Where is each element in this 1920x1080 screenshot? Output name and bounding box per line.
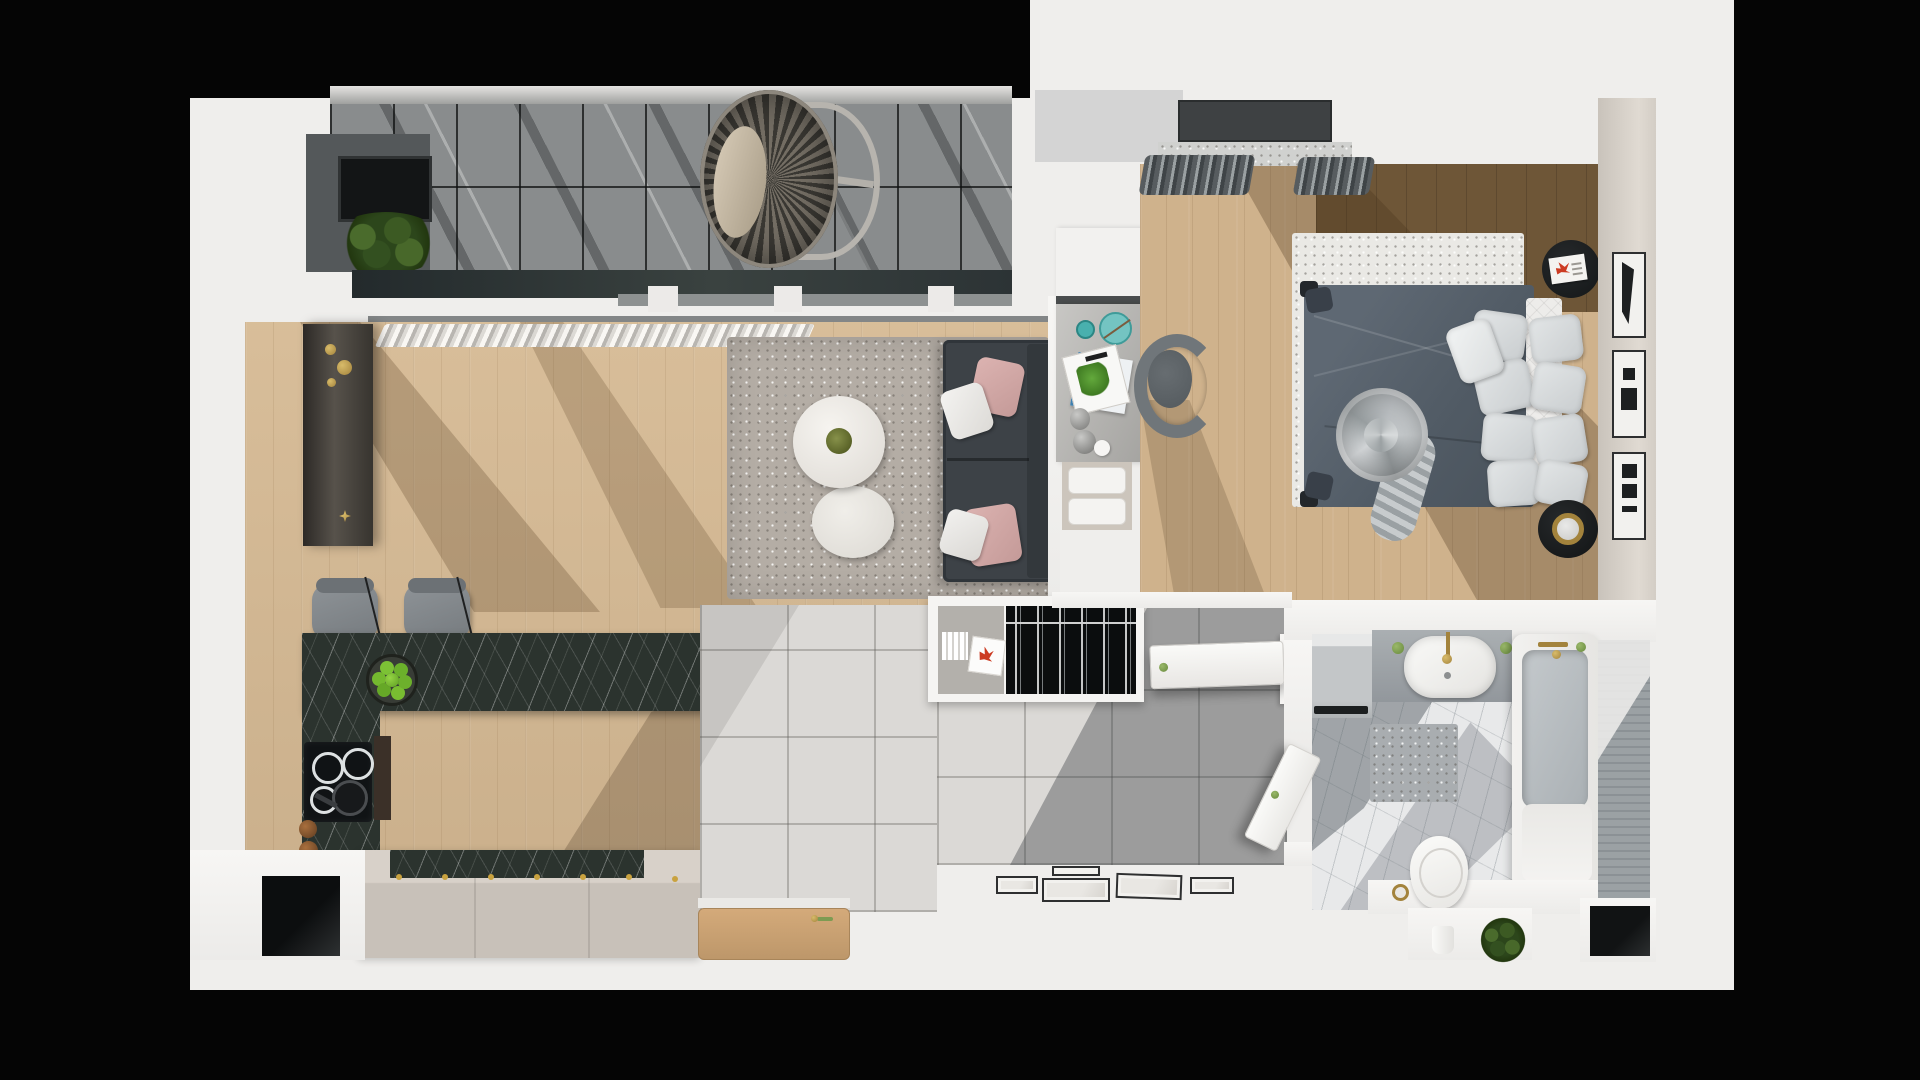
hanging-egg-chair [700, 90, 886, 272]
bedroom-curtain [1293, 157, 1376, 195]
tub-basin [1522, 650, 1588, 808]
apple-bowl [366, 654, 418, 706]
sink-faucet [1446, 632, 1450, 656]
bathroom-left-wall [1284, 640, 1312, 758]
burner [342, 748, 374, 780]
balcony [306, 80, 1016, 312]
red-artwork [978, 646, 994, 662]
bedroom-right-wall [1598, 98, 1656, 610]
island-door-seams [362, 878, 704, 958]
decor-gold-dish [325, 344, 336, 355]
sofa-seat-divider [947, 458, 1029, 461]
wall-art-panel [1612, 452, 1646, 540]
pillow [1527, 313, 1584, 365]
desk-drawer-unit [1062, 462, 1132, 530]
kitchen-island [362, 850, 704, 958]
bedroom-window [1178, 100, 1332, 142]
rolled-blanket [1336, 388, 1428, 482]
wall-picture-frame [1042, 878, 1110, 902]
rail-bracket [774, 286, 802, 312]
art-bar [1622, 506, 1637, 512]
tub-faucet [1538, 642, 1568, 647]
tub-deck [1522, 804, 1592, 882]
pillow [1486, 458, 1541, 508]
bar-stool [312, 584, 378, 640]
bathroom-shaft-niche [1590, 906, 1650, 956]
pillow [1531, 412, 1590, 468]
entrance-door [698, 908, 850, 960]
decor-gold-star [339, 510, 351, 522]
vanity-counter [1372, 630, 1512, 702]
island-marble-top [390, 850, 644, 878]
art-square [1623, 368, 1635, 380]
rail-bracket [648, 286, 678, 312]
washer-slot [1314, 706, 1368, 714]
entrance-threshold [698, 898, 850, 908]
wardrobe-cubby [938, 606, 1004, 694]
drawer [1068, 498, 1126, 525]
paint-brush [1103, 319, 1130, 339]
decor-gold-dish [337, 360, 352, 375]
small-picture-frame [968, 636, 1007, 676]
pillow [1480, 412, 1538, 465]
bedroom-curtain [1138, 155, 1255, 195]
shaft-niche [262, 876, 340, 956]
decor-gold-dish [327, 378, 336, 387]
nightstand-top [1542, 240, 1600, 298]
entrance-door-knob [811, 915, 818, 922]
washing-machine [1312, 634, 1372, 718]
sink-basin [1404, 636, 1496, 698]
soap-dish [1500, 642, 1512, 654]
bar-stool [404, 584, 470, 640]
papers [1548, 254, 1587, 285]
frame-art [1001, 881, 1033, 889]
wall-light-wedge [1598, 640, 1650, 760]
wall-picture-frame [996, 876, 1038, 894]
bathroom-left-wall-stub [1284, 842, 1312, 866]
desk-back-edge [1056, 296, 1142, 304]
teal-cup [1076, 320, 1095, 339]
tub-faucet-knob [1552, 650, 1561, 659]
green-apples [385, 673, 399, 687]
frame-art [1121, 878, 1177, 895]
office-chair [1134, 334, 1220, 438]
bathroom-plant [1476, 916, 1528, 964]
bathroom-right-wall [1598, 640, 1650, 906]
frame-art [1047, 883, 1105, 897]
coffee-table-small [812, 486, 894, 558]
clothes-hangers [1006, 606, 1136, 694]
copper-pot [299, 820, 317, 838]
wall-art-panel [1612, 252, 1646, 338]
desk-white-dish [1094, 440, 1110, 456]
books [942, 632, 968, 660]
hanger-rail [1006, 622, 1136, 624]
red-bird-print [1555, 261, 1571, 275]
sofa [943, 340, 1055, 582]
wall-picture-frame [1052, 866, 1100, 876]
door-handle [1159, 663, 1168, 672]
entrance-door-handle [817, 917, 833, 921]
frying-pan [332, 780, 368, 816]
induction-cooktop [304, 742, 372, 822]
desk-knob-object [1070, 408, 1090, 430]
magazine-cover-art [1075, 360, 1112, 398]
plan-canvas-top-right [1030, 0, 1734, 98]
wall-picture-frame [1190, 877, 1234, 894]
bathroom-vase [1432, 926, 1454, 954]
wall-picture-frame [1116, 873, 1183, 900]
door-handle [1270, 789, 1281, 800]
art-squares [1622, 464, 1637, 478]
hall-wardrobe [928, 596, 1144, 702]
dark-pillow [1304, 471, 1335, 502]
nightstand-bottom [1538, 500, 1598, 558]
desk-upper-cabinet [1056, 228, 1142, 302]
blanket-swirl-center [1364, 418, 1398, 452]
print-text-lines [1571, 262, 1581, 265]
soap-dish [1392, 642, 1404, 654]
sink-drain [1444, 672, 1451, 679]
bath-mat [1370, 724, 1458, 802]
oven-front [374, 736, 391, 820]
wall-bedroom-hall [1052, 592, 1292, 608]
drawer [1068, 467, 1126, 494]
tub-soap [1576, 642, 1586, 652]
burner [312, 752, 344, 784]
faucet-head [1442, 654, 1452, 664]
toilet-gold-dish [1392, 884, 1409, 901]
balcony-plant [328, 212, 444, 274]
bathtub [1512, 634, 1600, 890]
art-square [1621, 388, 1637, 410]
balcony-roof-rail [330, 86, 1012, 104]
rail-bracket [928, 286, 954, 312]
wardrobe-hanger-section [1006, 606, 1136, 694]
desk-knob-object [1073, 430, 1096, 454]
teal-plate [1099, 312, 1132, 345]
frame-art [1195, 882, 1229, 889]
chair-seat [1148, 350, 1192, 408]
hall-tiles [700, 605, 937, 912]
wall-art-panel [1612, 350, 1646, 438]
art-blade-shape [1622, 262, 1634, 324]
gold-mirror-clock [1552, 513, 1584, 545]
table-plant [826, 428, 852, 454]
pillow [1529, 360, 1588, 416]
toilet-lid-seam [1419, 848, 1463, 898]
sideboard [303, 324, 373, 546]
dark-pillow [1304, 286, 1334, 314]
coffee-table-large [793, 396, 885, 488]
living-window-frame [368, 316, 1062, 323]
desk [1056, 304, 1142, 462]
bedroom-door-open [1149, 641, 1284, 690]
floor-plan-stage [0, 0, 1920, 1080]
toilet [1410, 836, 1468, 908]
